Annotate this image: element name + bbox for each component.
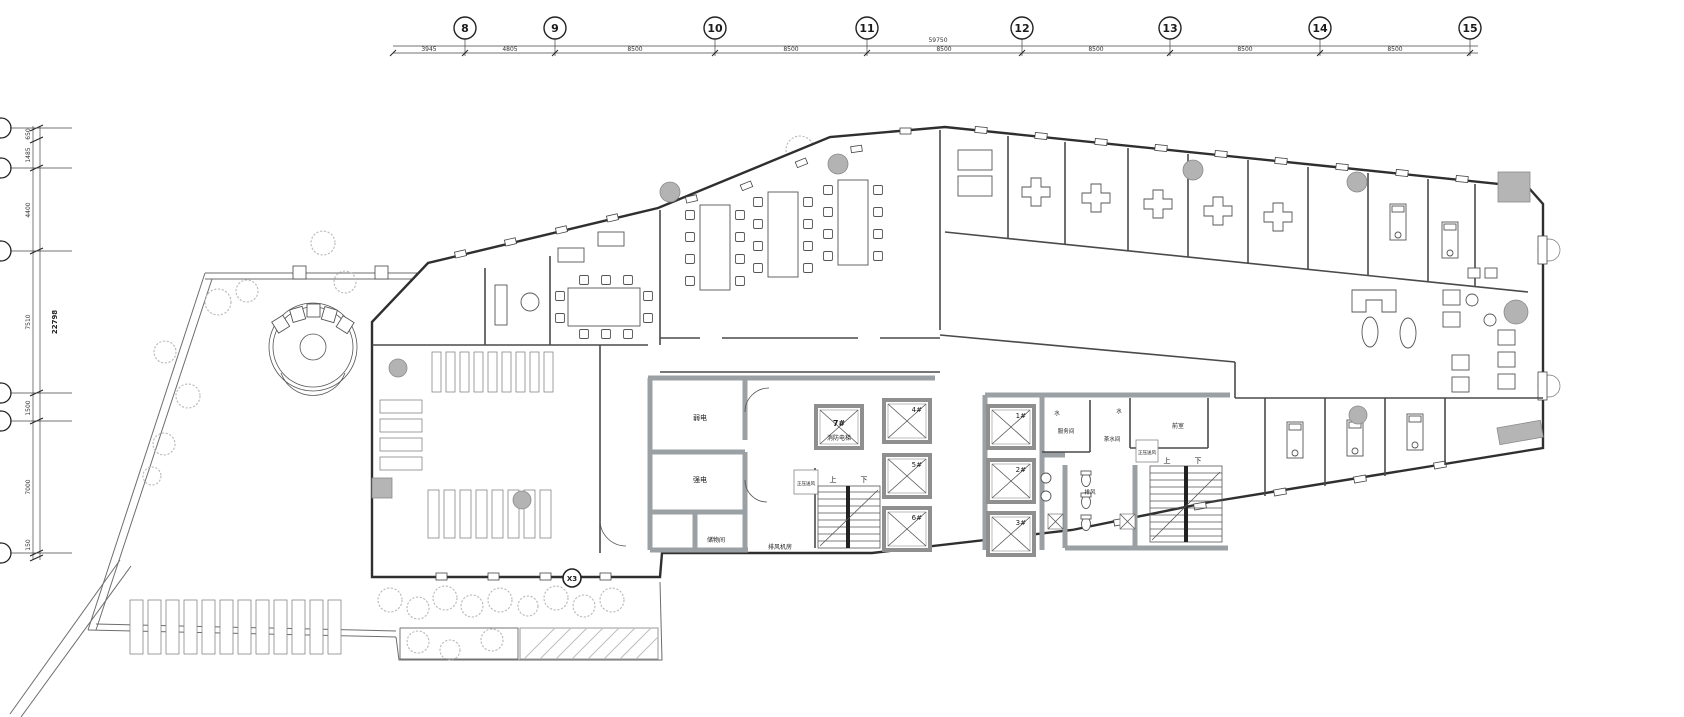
elevator-3-label: 3#	[1016, 519, 1026, 527]
pier	[372, 478, 392, 498]
elevator-5: 5#	[884, 455, 930, 497]
grid-label-8: 8	[461, 22, 469, 35]
dim-top-3: 8500	[783, 46, 798, 53]
porch	[1498, 172, 1530, 202]
grid-label-15: 15	[1462, 22, 1477, 35]
elevator-1: 1#	[988, 406, 1034, 448]
grid-label-14: 14	[1312, 22, 1328, 35]
dim-left-total: 22798	[51, 310, 59, 334]
dim-left-0: 650	[25, 128, 32, 140]
dim-left-6: 150	[25, 539, 32, 551]
dim-top-2: 8500	[627, 46, 642, 53]
stair-right-down: 下	[1195, 457, 1202, 465]
room-strong-power: 强电	[693, 475, 707, 484]
room-label-strong-power: 强电	[693, 475, 707, 484]
elevator-4-label: 4#	[912, 406, 922, 414]
dim-left-3: 7510	[25, 314, 32, 329]
grid-label-13: 13	[1162, 22, 1177, 35]
elevator-7-label: 7#	[833, 419, 846, 428]
label-pressurized-air-left: 正压送风	[797, 480, 815, 487]
keyplan-marker: X3	[563, 569, 581, 587]
floor-plan-canvas: 8 9 10 11 12 13 14 15 3945 4805 8500 850…	[0, 0, 1684, 717]
label-water-2: 水	[1116, 407, 1122, 415]
elevator-6: 6#	[884, 508, 930, 550]
label-pressurized-air-right: 正压送风	[1138, 449, 1156, 456]
grid-label-10: 10	[707, 22, 723, 35]
parapet-post	[375, 266, 388, 279]
elevator-1-label: 1#	[1016, 412, 1026, 420]
room-label-pantry: 茶水间	[1104, 435, 1121, 443]
room-label-storage: 储物间	[707, 536, 725, 544]
label-exhaust: 排风	[1084, 488, 1096, 496]
elevator-2: 2#	[988, 460, 1034, 502]
circular-seating-pavilion	[269, 303, 357, 396]
grid-left: 650 1485 4400 7510 1500 7000 150 22798	[0, 118, 72, 563]
grid-bubble-11: 11	[856, 17, 878, 39]
elevator-5-label: 5#	[912, 461, 922, 469]
keyplan-marker-label: X3	[567, 575, 577, 583]
dim-top-6: 8500	[1237, 46, 1252, 53]
elevator-2-label: 2#	[1016, 466, 1026, 474]
floor-plan-drawing: 8 9 10 11 12 13 14 15 3945 4805 8500 850…	[0, 0, 1684, 717]
grid-bubble-10: 10	[704, 17, 726, 39]
grid-left-bubbles	[0, 118, 72, 563]
grid-label-12: 12	[1014, 22, 1029, 35]
dim-left-1: 1485	[25, 147, 32, 162]
dim-left-2: 4400	[25, 202, 32, 217]
elevator-7-fire: 7# 消防电梯	[816, 406, 862, 448]
dim-left-5: 7000	[25, 479, 32, 494]
grid-bubble-13: 13	[1159, 17, 1181, 39]
dim-top-total: 59750	[928, 37, 947, 44]
pressurization-shaft-right: 正压送风	[1136, 440, 1158, 462]
ramp-hatch	[520, 628, 658, 659]
grid-label-9: 9	[551, 22, 559, 35]
dim-left-4: 1500	[25, 400, 32, 415]
elevator-4: 4#	[884, 400, 930, 442]
parapet-post	[293, 266, 306, 279]
room-label-weak-power: 弱电	[693, 413, 707, 422]
stair-right-up: 上	[1164, 456, 1171, 465]
grid-bubble-12: 12	[1011, 17, 1033, 39]
pressurization-shaft-left: 正压送风	[794, 470, 818, 494]
grid-bubble-8: 8	[454, 17, 476, 39]
dim-top-4: 8500	[936, 46, 951, 53]
room-label-anteroom: 前室	[1172, 422, 1184, 430]
elevator-6-label: 6#	[912, 514, 922, 522]
stair-left-up: 上	[830, 475, 837, 484]
grid-bubble-14: 14	[1309, 17, 1331, 39]
grid-bubble-15: 15	[1459, 17, 1481, 39]
label-water-1: 水	[1054, 409, 1060, 417]
dim-top-1: 4805	[502, 46, 517, 53]
grid-label-11: 11	[859, 22, 874, 35]
elevator-3: 3#	[988, 513, 1034, 555]
dim-top-7: 8500	[1387, 46, 1402, 53]
dim-top-0: 3945	[421, 46, 436, 53]
grid-top: 8 9 10 11 12 13 14 15 3945 4805 8500 850…	[390, 17, 1481, 56]
room-label-service: 服务间	[1058, 427, 1075, 435]
label-fire-elevator: 消防电梯	[827, 434, 851, 442]
grid-bubble-9: 9	[544, 17, 566, 39]
dim-top-5: 8500	[1088, 46, 1103, 53]
room-weak-power: 弱电	[693, 413, 707, 422]
room-label-exhaust-fan-room: 排风机房	[768, 543, 792, 551]
stair-left-down: 下	[861, 476, 868, 484]
